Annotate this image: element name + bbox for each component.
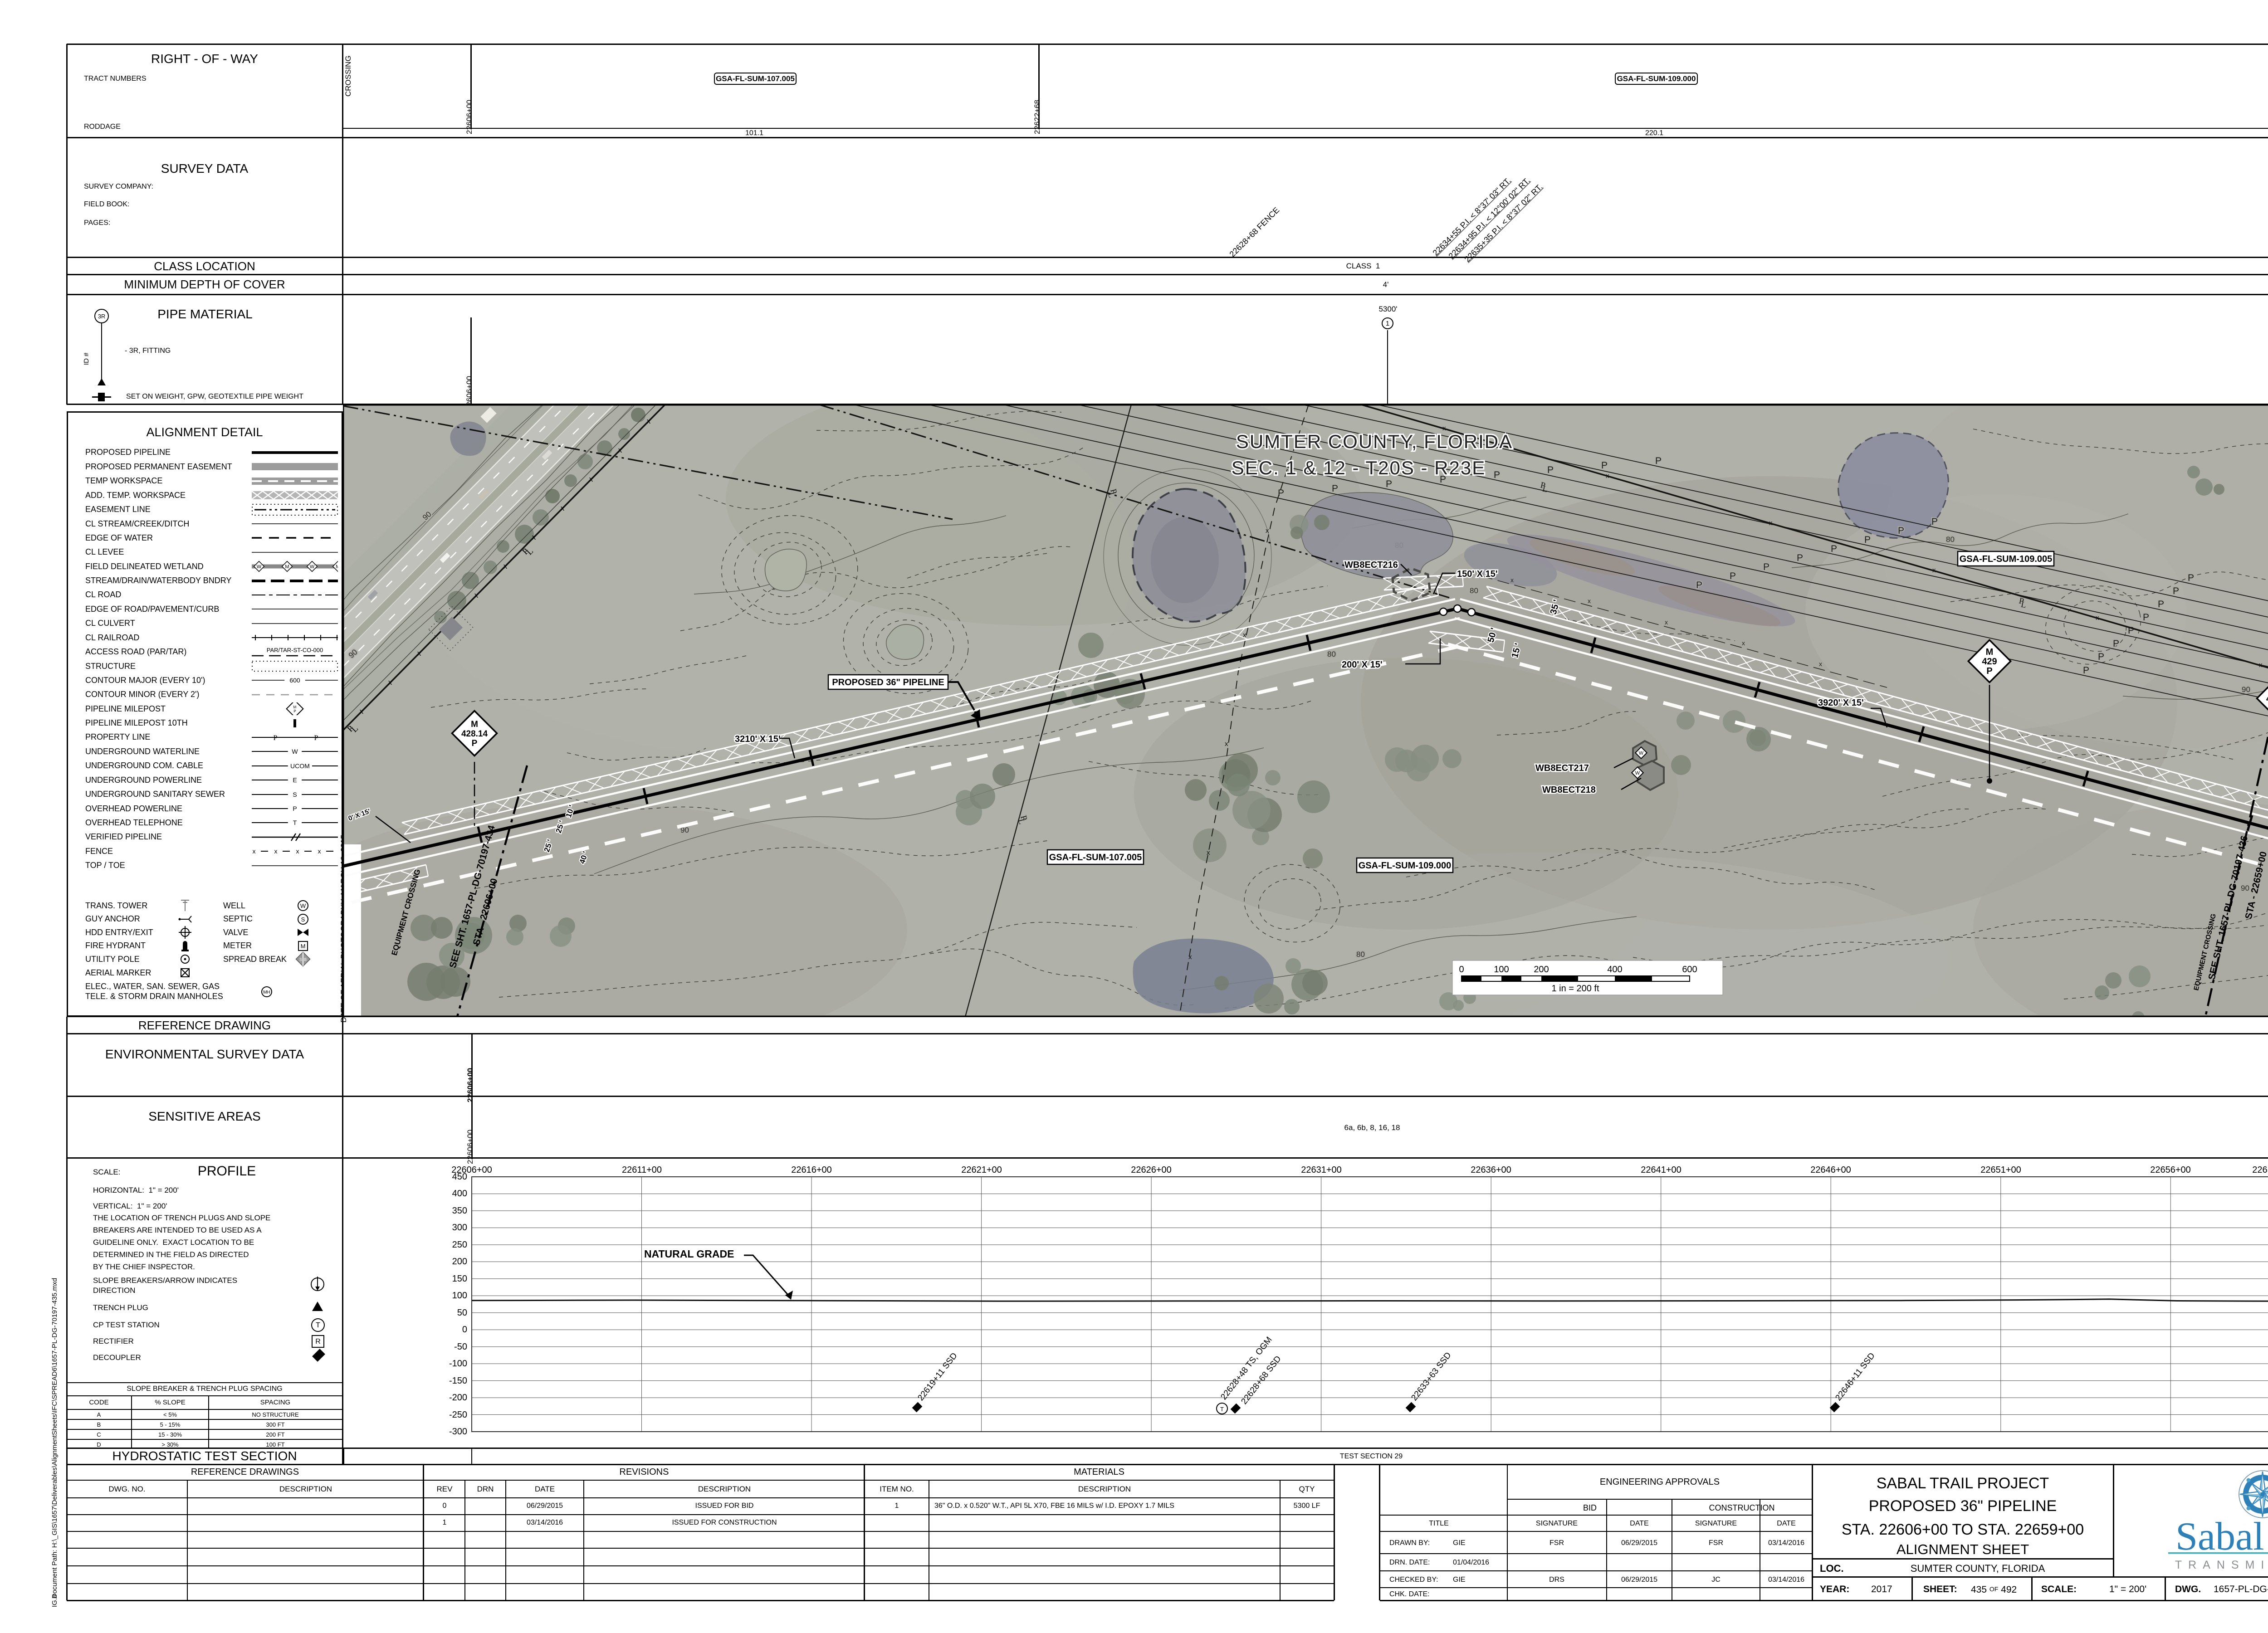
svg-text:P: P [1898,526,1904,536]
svg-text:P: P [2098,652,2104,662]
svg-text:TRANSMISSION: TRANSMISSION [2175,1559,2268,1571]
svg-text:600: 600 [1682,965,1697,975]
svg-text:x: x [618,446,622,454]
svg-text:22659+00: 22659+00 [2252,1165,2268,1175]
svg-text:P: P [293,709,296,713]
svg-text:x: x [1606,472,1609,480]
svg-text:100: 100 [452,1291,467,1301]
svg-text:x: x [1665,619,1668,626]
svg-text:x: x [2096,614,2099,622]
svg-text:WB8ECT217: WB8ECT217 [1535,763,1589,773]
svg-text:M: M [301,943,306,950]
svg-text:22616+00: 22616+00 [791,1165,832,1175]
svg-text:WB8ECT218: WB8ECT218 [1542,785,1596,795]
svg-text:x: x [474,591,479,600]
svg-text:3920' X 15': 3920' X 15' [1818,698,1864,708]
svg-text:P: P [2143,612,2149,623]
svg-text:W: W [300,902,306,909]
svg-text:W: W [257,564,262,570]
svg-text:x: x [1769,519,1773,527]
svg-text:P: P [1655,456,1662,466]
svg-text:-250: -250 [449,1410,467,1420]
svg-text:P: P [1601,460,1608,471]
svg-text:400: 400 [452,1189,467,1199]
svg-text:W: W [310,564,315,570]
svg-text:GSA-FL-SUM-109.000: GSA-FL-SUM-109.000 [1359,861,1452,871]
svg-text:x: x [360,707,364,716]
svg-text:200: 200 [1534,965,1549,975]
svg-text:400: 400 [1607,965,1622,975]
svg-text:22641+00: 22641+00 [1641,1165,1681,1175]
svg-text:x: x [1819,660,1822,668]
svg-text:22619+11 SSD: 22619+11 SSD [916,1351,959,1403]
svg-text:90: 90 [2241,884,2249,892]
svg-text:50: 50 [457,1308,467,1318]
svg-text:x: x [647,417,651,425]
svg-text:UCOM: UCOM [290,762,310,770]
svg-text:x: x [1932,566,1936,574]
svg-text:22651+00: 22651+00 [1980,1165,2021,1175]
svg-text:22621+00: 22621+00 [961,1165,1002,1175]
svg-text:P: P [1797,553,1803,563]
svg-text:S: S [293,791,297,798]
svg-text:x: x [1742,639,1745,647]
svg-text:150: 150 [452,1274,467,1284]
svg-text:200: 200 [452,1257,467,1267]
svg-text:80: 80 [1356,950,1365,959]
svg-text:x: x [2259,661,2263,669]
svg-text:22656+00: 22656+00 [2150,1165,2191,1175]
svg-text:M: M [1986,647,1994,657]
svg-text:P: P [1986,666,1992,676]
svg-text:80: 80 [1946,535,1955,544]
svg-text:PAR/TAR-ST-CO-000: PAR/TAR-ST-CO-000 [267,647,323,653]
svg-text:x: x [1510,576,1514,584]
svg-text:1 in = 200 ft: 1 in = 200 ft [1551,984,1599,994]
svg-text:x: x [503,562,508,570]
svg-text:-50: -50 [454,1342,467,1352]
svg-text:T: T [1220,1406,1224,1413]
svg-text:PROPOSED 36" PIPELINE: PROPOSED 36" PIPELINE [832,678,944,687]
svg-text:428.14: 428.14 [461,729,488,739]
svg-text:22636+00: 22636+00 [1471,1165,1511,1175]
svg-text:22631+00: 22631+00 [1301,1165,1342,1175]
svg-text:T: T [293,819,297,826]
svg-text:S: S [299,957,302,962]
svg-text:P: P [293,805,297,812]
svg-text:150' X 15': 150' X 15' [1457,569,1498,579]
svg-text:x: x [296,848,299,855]
svg-text:P: P [1332,483,1338,494]
svg-text:WB8ECT216: WB8ECT216 [1344,560,1398,570]
svg-text:600: 600 [289,677,300,684]
svg-text:x: x [417,649,421,658]
svg-text:MH: MH [263,990,270,995]
svg-text:GSA-FL-SUM-109.005: GSA-FL-SUM-109.005 [1960,554,2053,564]
svg-text:P: P [1547,465,1554,475]
svg-text:Sabal Trail: Sabal Trail [2175,1515,2268,1559]
svg-text:M: M [285,564,289,570]
svg-text:M: M [336,564,338,570]
svg-text:0: 0 [1459,965,1464,975]
svg-text:x: x [589,475,593,483]
svg-text:x: x [1225,740,1228,748]
svg-text:P: P [1696,580,1702,590]
svg-text:100: 100 [1494,965,1509,975]
svg-text:x: x [318,848,321,855]
svg-text:-100: -100 [449,1359,467,1369]
svg-text:22646+11 SSD: 22646+11 SSD [1833,1351,1877,1403]
svg-text:x: x [1266,527,1269,535]
svg-text:P: P [2173,586,2179,596]
svg-text:P: P [2083,665,2089,676]
svg-text:M: M [293,705,297,709]
svg-text:SUMTER COUNTY, FLORIDA: SUMTER COUNTY, FLORIDA [1236,431,1513,452]
svg-text:P: P [1864,535,1871,545]
svg-text:P: P [1386,479,1392,489]
svg-text:3210' X 15': 3210' X 15' [735,734,781,744]
svg-text:W: W [292,748,298,755]
svg-text:P: P [1494,470,1500,480]
svg-text:80: 80 [1470,586,1478,595]
svg-text:x: x [532,533,536,541]
svg-text:P̶: P̶ [274,734,280,742]
svg-text:P: P [1931,517,1938,527]
svg-text:W: W [1635,770,1640,776]
svg-text:E: E [293,776,297,784]
svg-text:SEC. 1 & 12 - T20S - R23E: SEC. 1 & 12 - T20S - R23E [1232,457,1486,478]
svg-text:80: 80 [1327,650,1336,658]
svg-text:x: x [388,678,392,687]
svg-text:350: 350 [452,1206,467,1216]
svg-text:x: x [1188,953,1192,961]
svg-text:x: x [274,848,278,855]
svg-text:250: 250 [452,1240,467,1250]
svg-text:22611+00: 22611+00 [622,1165,662,1175]
svg-text:300: 300 [452,1223,467,1233]
svg-text:M: M [471,720,478,729]
svg-text:200' X 15': 200' X 15' [1342,660,1383,670]
svg-text:P: P [2113,639,2119,649]
svg-text:-150: -150 [449,1376,467,1386]
svg-text:P: P [1730,571,1736,581]
svg-text:22633+63 SSD: 22633+63 SSD [1409,1350,1453,1403]
svg-text:0: 0 [462,1325,467,1335]
svg-text:S: S [301,916,305,923]
svg-text:P: P [472,739,478,748]
svg-text:-300: -300 [449,1427,467,1437]
svg-text:NATURAL GRADE: NATURAL GRADE [644,1248,734,1260]
svg-text:90: 90 [2242,685,2250,694]
svg-text:W: W [1639,751,1644,756]
svg-text:x: x [1588,597,1591,604]
svg-text:P: P [1763,562,1769,572]
svg-text:x: x [561,504,565,512]
svg-text:22646+00: 22646+00 [1810,1165,1851,1175]
svg-text:P̶: P̶ [314,734,321,742]
svg-text:-200: -200 [449,1393,467,1403]
svg-text:429.15: 429.15 [2266,694,2268,704]
svg-text:GSA-FL-SUM-107.005: GSA-FL-SUM-107.005 [1049,853,1142,863]
svg-text:P: P [1831,544,1837,554]
svg-text:P: P [2158,599,2164,609]
svg-text:22606+00: 22606+00 [451,1165,492,1175]
svg-text:x: x [1207,849,1210,857]
svg-text:B: B [304,957,307,962]
svg-text:x: x [253,848,256,855]
svg-text:429: 429 [1982,657,1997,667]
svg-text:22626+00: 22626+00 [1131,1165,1172,1175]
svg-text:P: P [2188,573,2194,583]
